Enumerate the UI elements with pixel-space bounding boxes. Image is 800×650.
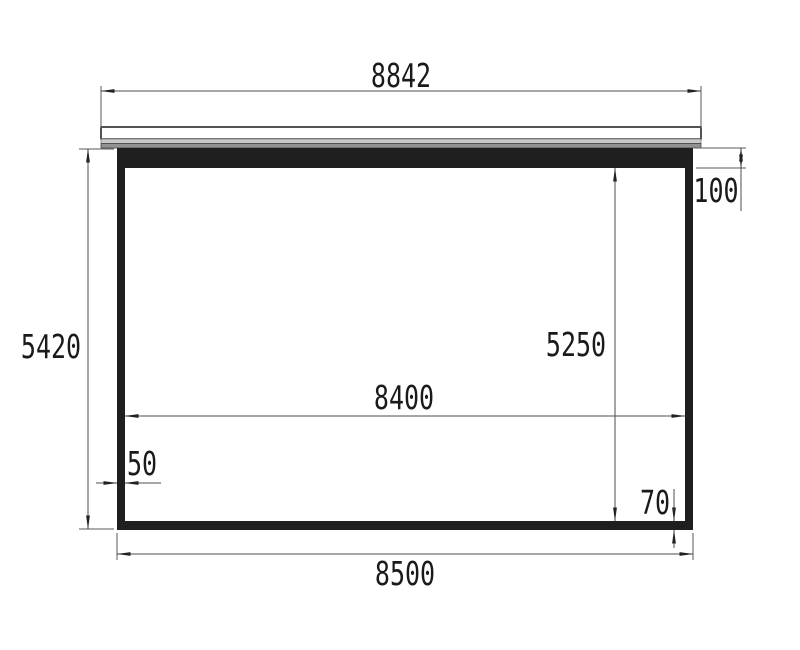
dim-outer-height: 5420: [21, 149, 114, 529]
dimension-drawing-canvas: 8842 5420 100 5250 8400: [0, 0, 800, 650]
dim-viewing-height-label: 5250: [546, 326, 606, 364]
dimension-drawing: 8842 5420 100 5250 8400: [0, 0, 800, 650]
case-strip-dark: [101, 144, 701, 149]
dim-outer-width: 8500: [117, 533, 693, 593]
dim-case-width: 8842: [101, 57, 701, 128]
dim-viewing-width-label: 8400: [374, 379, 434, 417]
dim-top-border-label: 100: [693, 172, 738, 210]
dim-top-border: 100: [693, 148, 746, 211]
dim-side-border-label: 50: [127, 445, 157, 483]
dim-case-width-label: 8842: [371, 57, 431, 95]
screen-case-housing: [101, 127, 701, 139]
dim-side-border: 50: [96, 445, 161, 483]
dim-outer-height-label: 5420: [21, 328, 81, 366]
dim-outer-width-label: 8500: [375, 555, 435, 593]
dim-bottom-border: 70: [640, 484, 674, 548]
case-strip-light: [101, 139, 701, 144]
dim-bottom-border-label: 70: [640, 484, 670, 522]
screen-assembly: [101, 127, 701, 530]
